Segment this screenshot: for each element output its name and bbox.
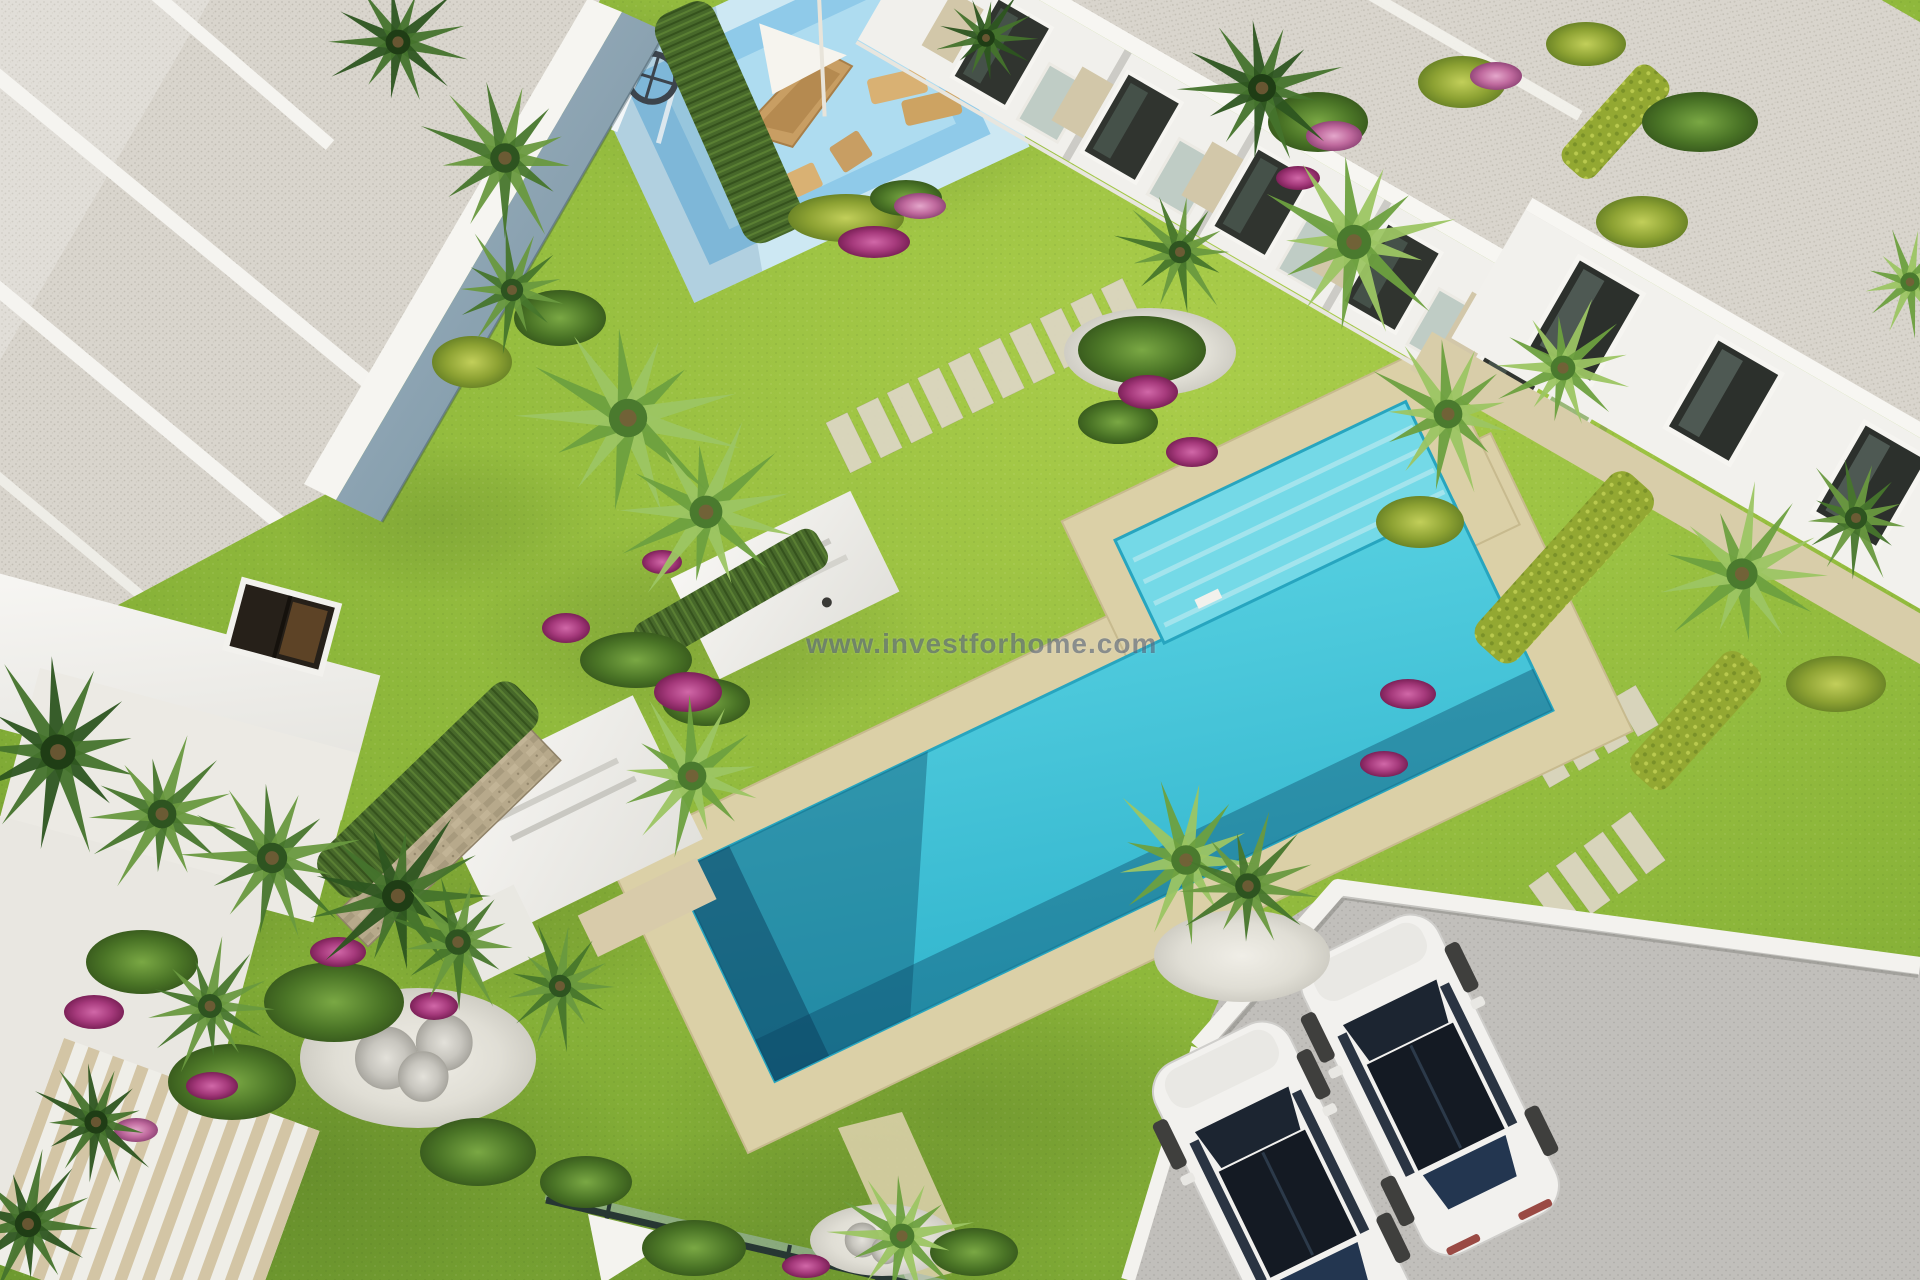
flower-bush — [542, 613, 590, 643]
flower-bush — [654, 672, 722, 712]
bush — [930, 1228, 1018, 1276]
bush — [1546, 22, 1626, 66]
flower-bush — [782, 1254, 830, 1278]
bush — [1078, 316, 1206, 384]
flower-bush — [1380, 679, 1436, 709]
flower-bush — [186, 1072, 238, 1100]
bush — [1786, 656, 1886, 712]
flower-bush — [1470, 62, 1522, 90]
flower-bush — [894, 193, 946, 219]
flower-bush — [1166, 437, 1218, 467]
bush — [432, 336, 512, 388]
flower-bush — [1306, 121, 1362, 151]
flower-bush — [310, 937, 366, 967]
bush — [1376, 496, 1464, 548]
bush — [264, 962, 404, 1042]
flower-bush — [1118, 375, 1178, 409]
bush — [642, 1220, 746, 1276]
bush — [540, 1156, 632, 1208]
flower-bush — [64, 995, 124, 1029]
gravel-patch — [1154, 910, 1330, 1002]
bush — [86, 930, 198, 994]
bush — [1642, 92, 1758, 152]
bush — [420, 1118, 536, 1186]
scene-canvas — [0, 0, 1920, 1280]
flower-bush — [838, 226, 910, 258]
flower-bush — [410, 992, 458, 1020]
flower-bush — [1360, 751, 1408, 777]
bush — [1596, 196, 1688, 248]
aerial-render: www.investforhome.com — [0, 0, 1920, 1280]
